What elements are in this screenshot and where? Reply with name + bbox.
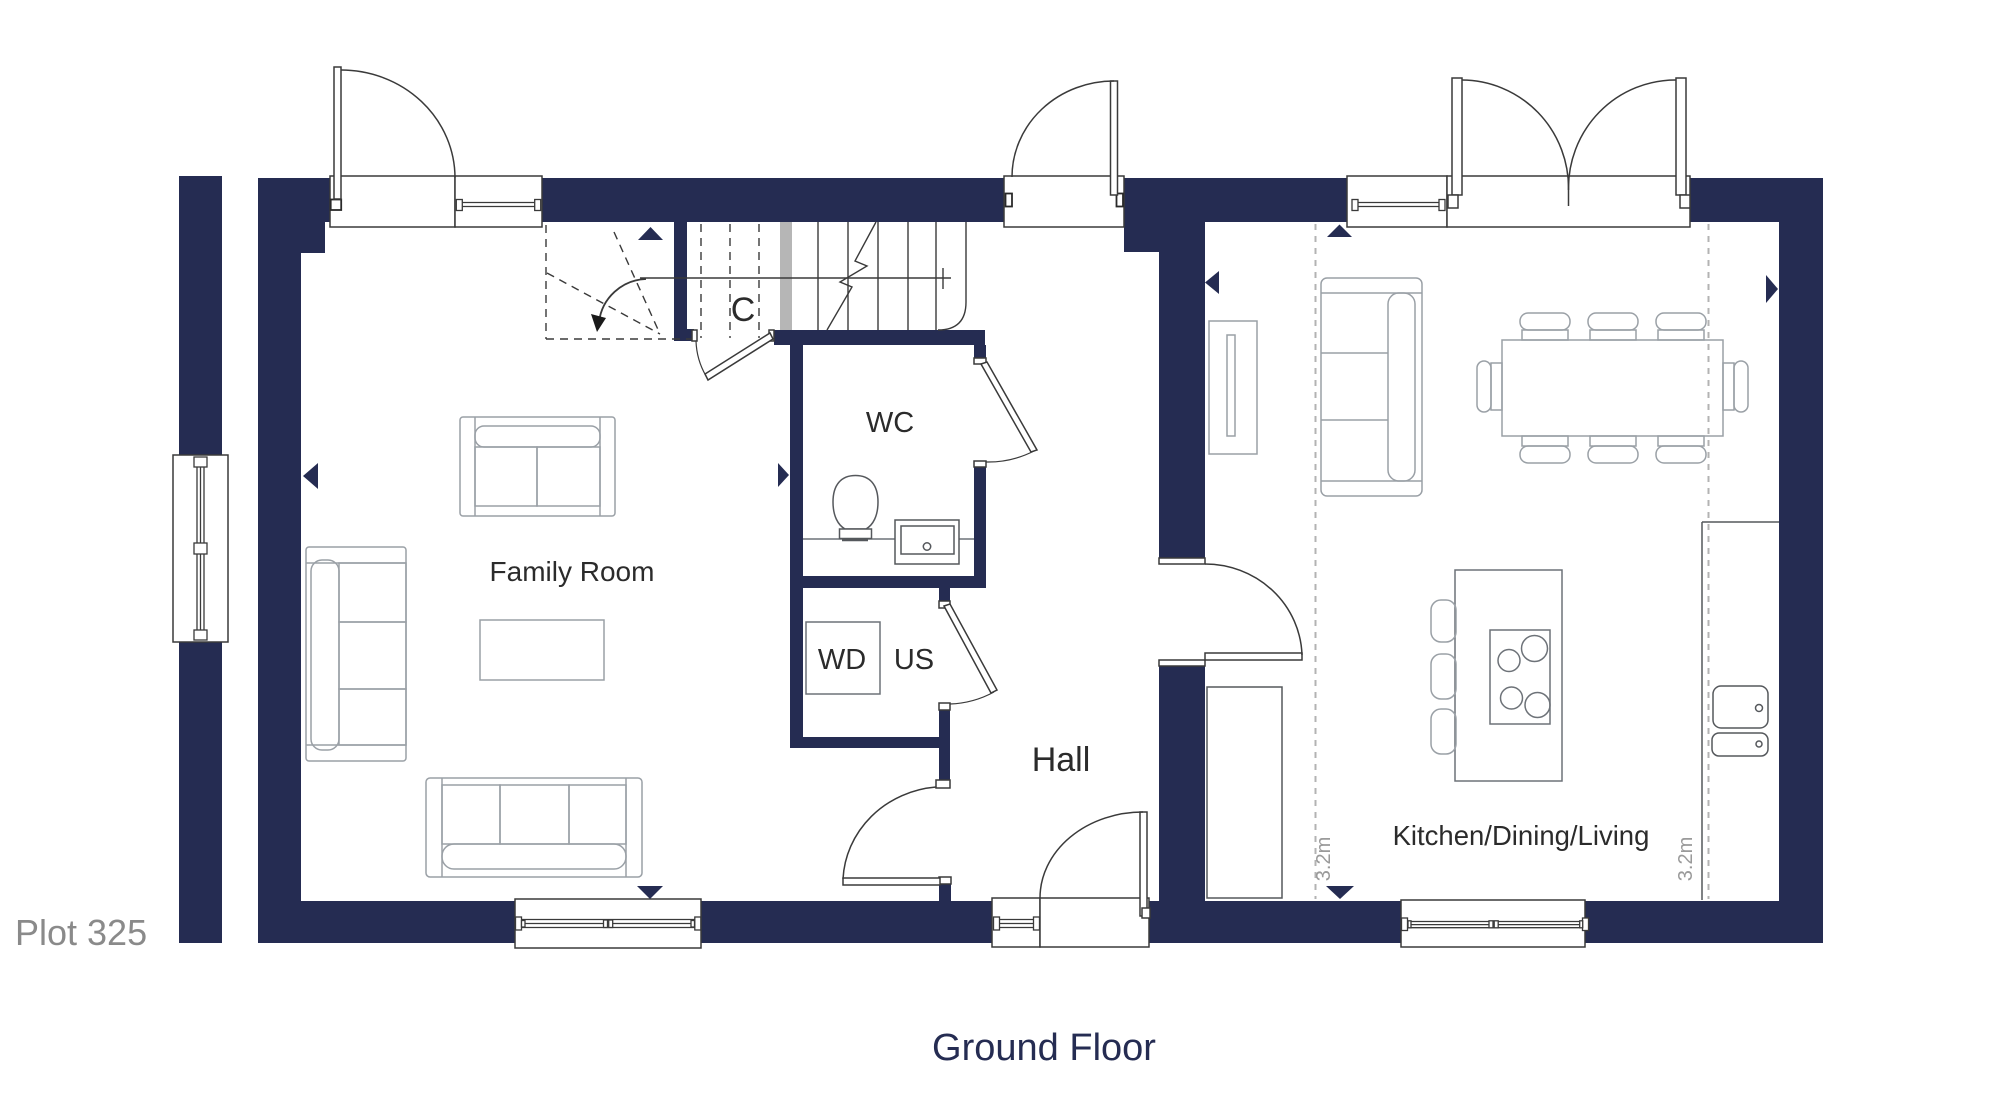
svg-text:3.2m: 3.2m — [1675, 837, 1697, 881]
svg-text:WD: WD — [818, 644, 866, 676]
svg-text:Ground Floor: Ground Floor — [932, 1027, 1156, 1069]
svg-text:Plot 325: Plot 325 — [15, 912, 147, 953]
svg-text:Hall: Hall — [1032, 741, 1091, 779]
svg-text:WC: WC — [866, 407, 914, 439]
svg-text:3.2m: 3.2m — [1313, 837, 1335, 881]
svg-text:Kitchen/Dining/Living: Kitchen/Dining/Living — [1393, 820, 1650, 851]
svg-text:C: C — [731, 291, 756, 329]
svg-text:US: US — [894, 644, 934, 676]
svg-text:Family Room: Family Room — [490, 556, 655, 587]
